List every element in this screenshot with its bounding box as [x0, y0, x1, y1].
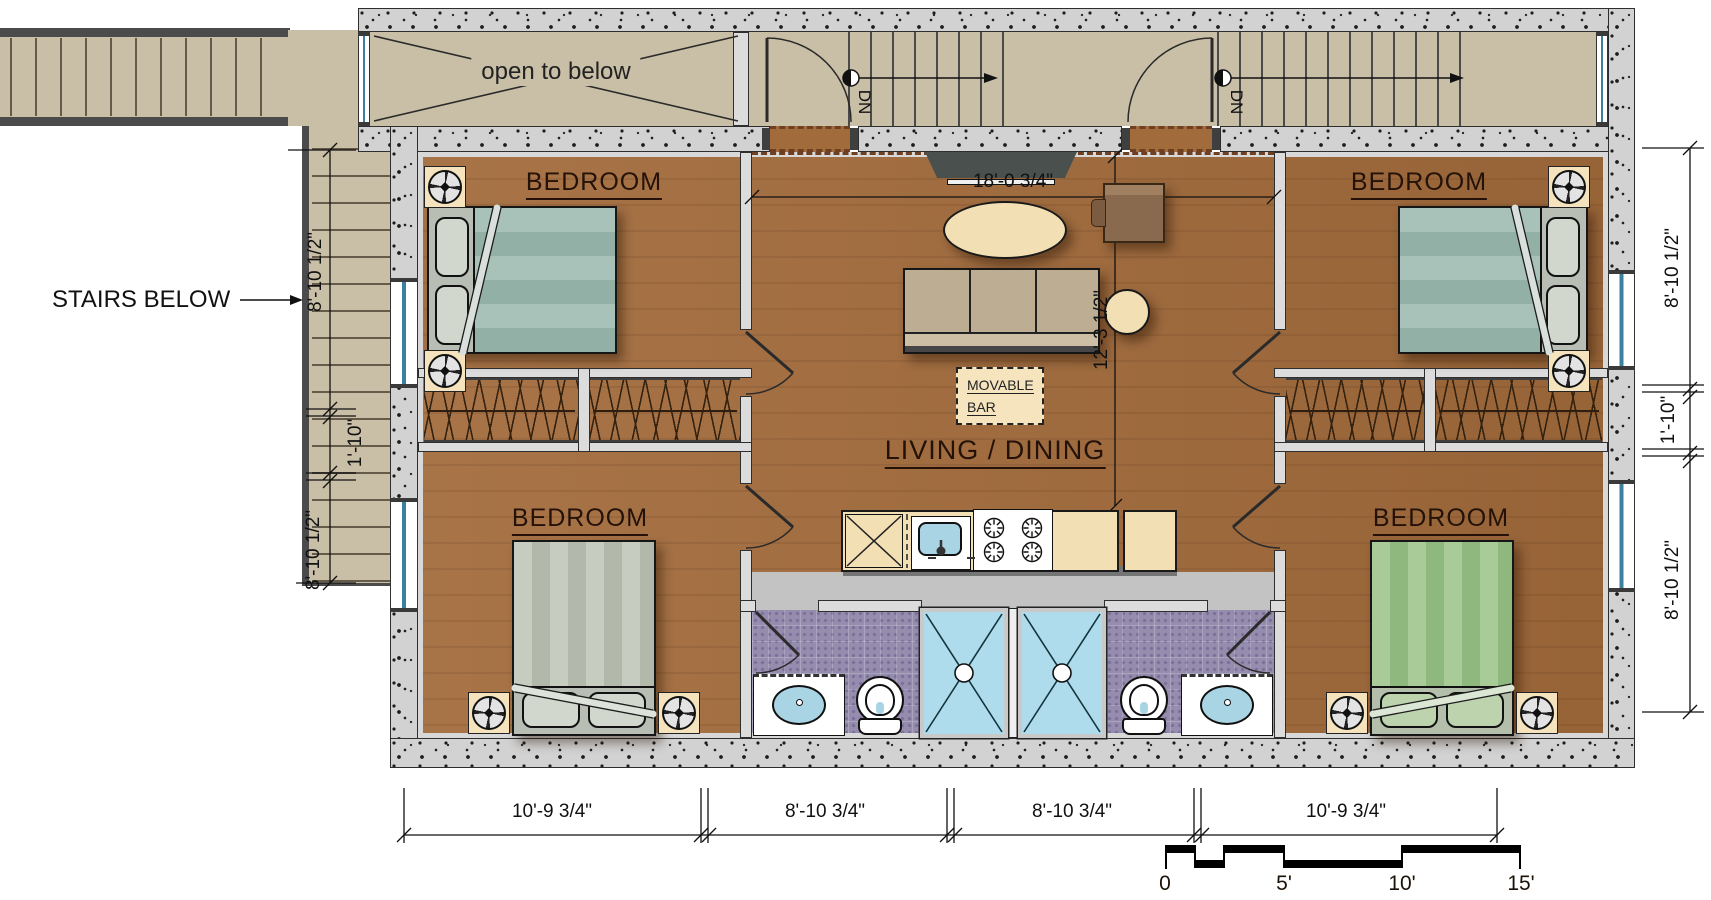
bedroom-tl-window [390, 278, 418, 388]
scale-tick-5: 5' [1276, 872, 1292, 896]
nightstand-fan-icon [1548, 166, 1590, 208]
scale-tick-15: 15' [1507, 872, 1534, 896]
dim-left-upper: 8'-10 1/2" [305, 232, 327, 312]
movable-bar-label-1: MOVABLE [967, 377, 1034, 394]
pillow [1380, 692, 1438, 728]
pillow [435, 285, 469, 345]
scale-tick-10: 10' [1388, 872, 1415, 896]
exterior-stair-treads [10, 38, 282, 116]
dining-table [943, 201, 1067, 259]
door-jamb [1212, 128, 1220, 150]
shower-right [1018, 608, 1106, 738]
door-jamb [762, 128, 770, 150]
landing-opening-right [1130, 126, 1212, 152]
bed-top-right [1398, 206, 1588, 354]
down-label-right: DN [1226, 90, 1246, 115]
wall-right-vert-3 [1274, 550, 1286, 738]
stairs-below-arrow [240, 295, 303, 305]
wall-right [1608, 8, 1635, 768]
bath-right-wall-a [1104, 600, 1208, 612]
door-jamb [1122, 128, 1130, 150]
wall-right-vert-2 [1274, 396, 1286, 484]
dim-bottom-3: 8'-10 3/4" [1032, 801, 1112, 823]
stair-run-right-treads [1217, 32, 1470, 126]
bed-bottom-left [512, 540, 656, 736]
dim-bottom-4: 10'-9 3/4" [1306, 801, 1386, 823]
wall-landing-bottom-c [1220, 126, 1635, 152]
wall-bottom [390, 738, 1635, 768]
closet-left-divider [578, 368, 590, 452]
dim-bottom-1: 10'-9 3/4" [512, 801, 592, 823]
nightstand-fan-icon [658, 692, 700, 734]
wall-left [390, 126, 418, 768]
landing-opening-left [770, 126, 850, 152]
living-dining-label: LIVING / DINING [885, 435, 1106, 469]
faucet-dot [1224, 699, 1231, 706]
landing-stub-wall [733, 32, 749, 126]
movable-bar-label-2: BAR [967, 399, 996, 416]
shower-left [920, 608, 1008, 738]
desk [1103, 183, 1165, 243]
open-to-below-label: open to below [471, 58, 640, 86]
dim-living-depth: 12'-3 1/2" [1091, 290, 1113, 370]
dim-living-width: 18'-0 3/4" [973, 171, 1053, 193]
dim-right-middle: 1'-10" [1658, 396, 1680, 444]
dim-right-upper: 8'-10 1/2" [1662, 228, 1684, 308]
closet-cell [1286, 378, 1424, 442]
shower-divider-wall [1008, 608, 1018, 738]
stove [973, 509, 1053, 571]
bedroom-br-window [1608, 480, 1635, 592]
nightstand-fan-icon [1516, 692, 1558, 734]
bedroom-label-bottom-left: BEDROOM [512, 504, 648, 536]
closet-rail [1439, 410, 1598, 412]
kitchen-sink-unit [911, 516, 971, 570]
scale-bar [1165, 845, 1521, 869]
closet-right-bottom-wall [1274, 442, 1608, 452]
wall-left-vert-1 [740, 152, 752, 330]
nightstand-fan-icon [1326, 692, 1368, 734]
bedroom-tr-window [1608, 270, 1635, 370]
pillow [1546, 217, 1580, 277]
landing-window-right [1596, 32, 1608, 126]
pillow [588, 692, 646, 728]
floor-plan: MOVABLE BAR [0, 0, 1711, 900]
movable-bar: MOVABLE BAR [956, 367, 1044, 425]
closet-rail [1289, 410, 1422, 412]
vanity-right [1181, 674, 1273, 736]
pillow [435, 217, 469, 277]
sofa [903, 268, 1100, 354]
pillow [1546, 285, 1580, 345]
wall-landing-bottom-b [858, 126, 1122, 152]
bath-left-wall-b [818, 600, 922, 612]
dim-bottom-2: 8'-10 3/4" [785, 801, 865, 823]
bath-right-wall-b [1270, 600, 1286, 612]
wall-right-vert-1 [1274, 152, 1286, 330]
closet-cell [590, 378, 740, 442]
wall-left-vert-2 [740, 396, 752, 484]
bedroom-label-top-left: BEDROOM [526, 168, 662, 200]
wall-landing-bottom-a [358, 126, 770, 152]
nightstand-fan-icon [424, 350, 466, 392]
pillow [522, 692, 580, 728]
nightstand-fan-icon [424, 166, 466, 208]
door-jamb [850, 128, 858, 150]
faucet-dot [796, 699, 803, 706]
dim-right-lower: 8'-10 1/2" [1662, 540, 1684, 620]
closet-right-divider [1424, 368, 1436, 452]
dim-left-middle: 1'-10" [345, 419, 367, 467]
closet-rail [593, 410, 737, 412]
kitchen-counter-right [1123, 510, 1177, 572]
bed-bottom-right [1370, 540, 1514, 736]
closet-rail [427, 410, 575, 412]
bath-left-wall-a [740, 600, 756, 612]
scale-tick-0: 0 [1159, 872, 1171, 896]
bed-top-left [427, 206, 617, 354]
kitchen-cabinet-x [845, 514, 903, 568]
bedroom-bl-window [390, 498, 418, 612]
toilet-left [852, 676, 910, 736]
landing-window-left [358, 32, 370, 126]
pillow [1446, 692, 1504, 728]
sink-basin [918, 522, 962, 556]
dim-left-lower: 8'-10 1/2" [303, 510, 325, 590]
bedroom-label-bottom-right: BEDROOM [1373, 504, 1509, 536]
nightstand-fan-icon [1548, 350, 1590, 392]
desk-chair [1091, 199, 1106, 227]
bedroom-label-top-right: BEDROOM [1351, 168, 1487, 200]
toilet-right [1116, 676, 1174, 736]
wall-top [358, 8, 1635, 32]
stairs-below-label: STAIRS BELOW [52, 286, 230, 314]
wall-left-vert-3 [740, 550, 752, 738]
down-label-left: DN [854, 90, 874, 115]
vanity-left [753, 674, 845, 736]
nightstand-fan-icon [468, 692, 510, 734]
